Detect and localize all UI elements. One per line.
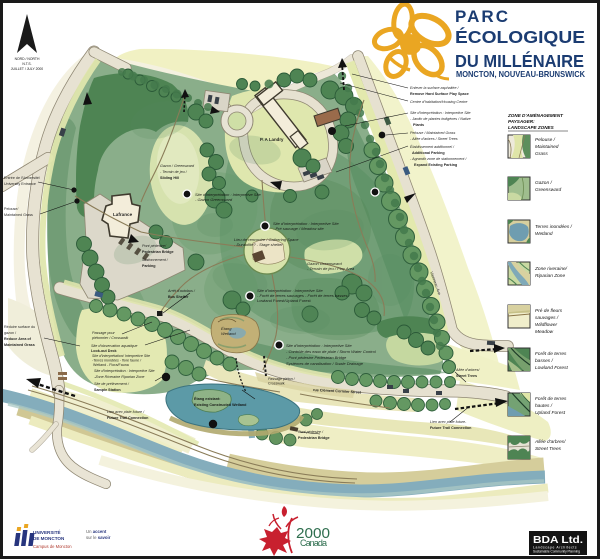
svg-text:Site d'interprétation : Interp: Site d'interprétation : Interpretive Sit… <box>410 111 471 115</box>
svg-text:- Terrain de jeu / Play Area: - Terrain de jeu / Play Area <box>307 266 355 271</box>
svg-text:piétonnier / Crosswalk: piétonnier / Crosswalk <box>91 336 128 340</box>
svg-text:- Contrôle des eaux de pluie /: - Contrôle des eaux de pluie / Storm Wat… <box>286 349 376 354</box>
svg-text:-Terres inondées - flore faune: -Terres inondées - flore faune / <box>92 359 142 363</box>
svg-text:UNIVERSITÉ: UNIVERSITÉ <box>33 528 61 535</box>
svg-text:DE MONCTON: DE MONCTON <box>33 536 65 541</box>
svg-text:Lien avec piste future-: Lien avec piste future- <box>430 420 467 424</box>
svg-text:-Zone Riveraine Riparian Zone: -Zone Riveraine Riparian Zone <box>94 375 144 379</box>
svg-text:DU MILLÉNAIRE: DU MILLÉNAIRE <box>455 50 584 71</box>
svg-text:Riparian Zone: Riparian Zone <box>535 273 565 279</box>
svg-text:- Pont pédestre Pedestrian Br: - Pont pédestre Pedestrian Bridge <box>286 355 347 360</box>
svg-text:sur le savoir: sur le savoir <box>86 535 111 540</box>
svg-text:Parking: Parking <box>142 264 156 268</box>
svg-text:Site d'interprétation : Interp: Site d'interprétation : Interpretive Sit… <box>94 369 155 373</box>
svg-text:Allée d'arbres/: Allée d'arbres/ <box>455 368 480 372</box>
svg-text:Terres inondées /: Terres inondées / <box>535 224 573 230</box>
svg-text:Sample Station: Sample Station <box>94 388 121 392</box>
svg-text:University Entrance: University Entrance <box>4 182 36 186</box>
svg-text:Réduire surface du: Réduire surface du <box>4 325 35 329</box>
svg-text:Lafrance: Lafrance <box>113 212 133 217</box>
svg-text:Plants: Plants <box>413 123 424 127</box>
svg-text:Gazon / Greensward: Gazon / Greensward <box>160 164 195 168</box>
svg-text:Enlever la surface asphaltée /: Enlever la surface asphaltée / <box>410 86 460 90</box>
svg-text:Existing Constructed Wetland: Existing Constructed Wetland <box>194 403 247 407</box>
svg-text:PAYSAGER:: PAYSAGER: <box>508 119 535 124</box>
svg-text:LANDSCAPE ZONES: LANDSCAPE ZONES <box>508 125 555 130</box>
svg-text:Upland Forest: Upland Forest <box>535 410 566 416</box>
svg-text:Look-out Deck: Look-out Deck <box>91 349 118 353</box>
svg-text:gazon /: gazon / <box>4 331 17 335</box>
svg-text:Maintained Grass: Maintained Grass <box>4 213 33 217</box>
svg-text:Pelouse / Maintained Grass: Pelouse / Maintained Grass <box>410 131 455 135</box>
svg-text:Site d'observation aquatique: Site d'observation aquatique <box>91 344 137 348</box>
svg-text:Bus Shelter: Bus Shelter <box>168 295 189 299</box>
svg-text:Maintained Grass: Maintained Grass <box>4 343 35 347</box>
svg-text:Pedestrian Bridge: Pedestrian Bridge <box>142 250 174 254</box>
svg-text:Stationnement /: Stationnement / <box>142 258 169 262</box>
svg-text:Allée d'arbres/: Allée d'arbres/ <box>534 439 566 445</box>
svg-text:Meadow: Meadow <box>535 329 554 335</box>
svg-text:Future Trail Connection: Future Trail Connection <box>107 416 149 420</box>
svg-text:Pré de fleurs: Pré de fleurs <box>535 308 563 314</box>
svg-text:Arrêt d'autobus /: Arrêt d'autobus / <box>167 289 196 293</box>
svg-text:Passage pour: Passage pour <box>92 331 116 335</box>
svg-text:Établissement additionnel /: Établissement additionnel / <box>410 144 455 149</box>
svg-text:Additional Parking: Additional Parking <box>412 151 445 155</box>
svg-text:Grass: Grass <box>535 151 548 157</box>
svg-text:Forêt de terres: Forêt de terres <box>535 351 567 357</box>
svg-text:Lowland Forest/Upland Forest: Lowland Forest/Upland Forest <box>257 298 311 303</box>
svg-text:ZONE D'AMÉNAGEMENT: ZONE D'AMÉNAGEMENT <box>507 111 564 118</box>
svg-text:Entrée de l'Université/: Entrée de l'Université/ <box>4 176 41 180</box>
svg-text:ÉCOLOGIQUE: ÉCOLOGIQUE <box>455 26 585 47</box>
svg-text:N.T.S.: N.T.S. <box>22 62 31 66</box>
svg-text:NORD / NORTH: NORD / NORTH <box>15 57 40 61</box>
svg-text:Un accent: Un accent <box>86 529 107 534</box>
svg-text:- Pré sauvage / Meadow site: - Pré sauvage / Meadow site <box>273 226 324 231</box>
svg-text:Wetland: Wetland <box>535 231 553 237</box>
svg-text:hautes /: hautes / <box>535 403 553 409</box>
svg-text:Wildflower: Wildflower <box>535 322 557 328</box>
svg-text:Passage piéton /: Passage piéton / <box>268 377 296 381</box>
svg-text:Forêt de terres: Forêt de terres <box>535 396 567 402</box>
svg-text:Sliding Hill: Sliding Hill <box>160 176 179 180</box>
svg-text:Remove Hard Surface Play Space: Remove Hard Surface Play Space <box>410 92 469 96</box>
svg-text:- Durabilité? - Stage shelter: - Durabilité? - Stage shelter <box>234 242 283 247</box>
svg-text:Campus de Moncton: Campus de Moncton <box>33 544 72 549</box>
svg-text:Pedestrian Bridge: Pedestrian Bridge <box>298 436 330 440</box>
svg-text:Zone riveraine/: Zone riveraine/ <box>534 266 568 272</box>
svg-text:Street Trees: Street Trees <box>535 446 562 452</box>
svg-text:- Agrandir zone de stationneme: - Agrandir zone de stationnement / <box>410 157 467 161</box>
svg-text:Site de prélèvement /: Site de prélèvement / <box>94 382 130 386</box>
svg-text:JUILLET / JULY 2000: JUILLET / JULY 2000 <box>11 67 44 71</box>
svg-text:- Jardin de plantes indigènes: - Jardin de plantes indigènes / Native <box>410 117 471 121</box>
svg-text:Pelouse /: Pelouse / <box>535 137 556 143</box>
svg-text:Street Trees: Street Trees <box>456 374 477 378</box>
svg-text:Pelouse/: Pelouse/ <box>4 207 19 211</box>
svg-text:Reduce Area of: Reduce Area of <box>4 337 32 341</box>
svg-text:Pont pédestre /: Pont pédestre / <box>298 430 324 434</box>
svg-text:Wetland: Wetland <box>221 331 236 336</box>
svg-text:Maintained: Maintained <box>535 144 559 150</box>
svg-text:basses /: basses / <box>535 358 554 364</box>
svg-text:sauvages /: sauvages / <box>535 315 559 321</box>
svg-text:Expand Existing Parking: Expand Existing Parking <box>414 163 457 167</box>
svg-text:Site d'interprétation/ Interpr: Site d'interprétation/ Interpretive Site <box>92 354 150 358</box>
svg-text:Lowland Forest: Lowland Forest <box>535 365 568 371</box>
svg-text:Site d'interprétation : Interp: Site d'interprétation : Interpretive Sit… <box>286 343 352 348</box>
svg-text:Gazon /: Gazon / <box>535 180 552 186</box>
svg-text:P. A Landry: P. A Landry <box>260 137 284 142</box>
svg-text:Systèmes de canalisation / Swa: Systèmes de canalisation / Swale Drainag… <box>286 361 364 366</box>
svg-text:- Gazon Greensward: - Gazon Greensward <box>195 197 233 202</box>
svg-text:- Allée d'arbres / Street Tree: - Allée d'arbres / Street Trees <box>410 137 458 141</box>
svg-text:Étang existant:: Étang existant: <box>194 396 220 401</box>
svg-text:Lien avec piste future /: Lien avec piste future / <box>107 410 145 414</box>
svg-text:Pont pédestre/: Pont pédestre/ <box>142 244 167 248</box>
svg-text:BDA Ltd.: BDA Ltd. <box>533 535 583 546</box>
svg-text:Greensward: Greensward <box>535 187 561 193</box>
svg-text:Crosswalk: Crosswalk <box>268 382 285 386</box>
svg-text:Canada: Canada <box>300 538 327 548</box>
svg-text:Sustainable Community Planning: Sustainable Community Planning <box>533 550 580 554</box>
svg-text:Future Trail Connection: Future Trail Connection <box>430 426 472 430</box>
svg-text:- Terrain de jeu /: - Terrain de jeu / <box>160 170 188 174</box>
svg-text:Centre d'habitation/Housing Ce: Centre d'habitation/Housing Centre <box>410 100 468 104</box>
svg-text:PARC: PARC <box>455 7 508 26</box>
svg-text:Wetland - Flora/Fauna: Wetland - Flora/Fauna <box>93 363 129 367</box>
svg-text:MONCTON, NOUVEAU-BRUNSWICK: MONCTON, NOUVEAU-BRUNSWICK <box>456 70 585 79</box>
